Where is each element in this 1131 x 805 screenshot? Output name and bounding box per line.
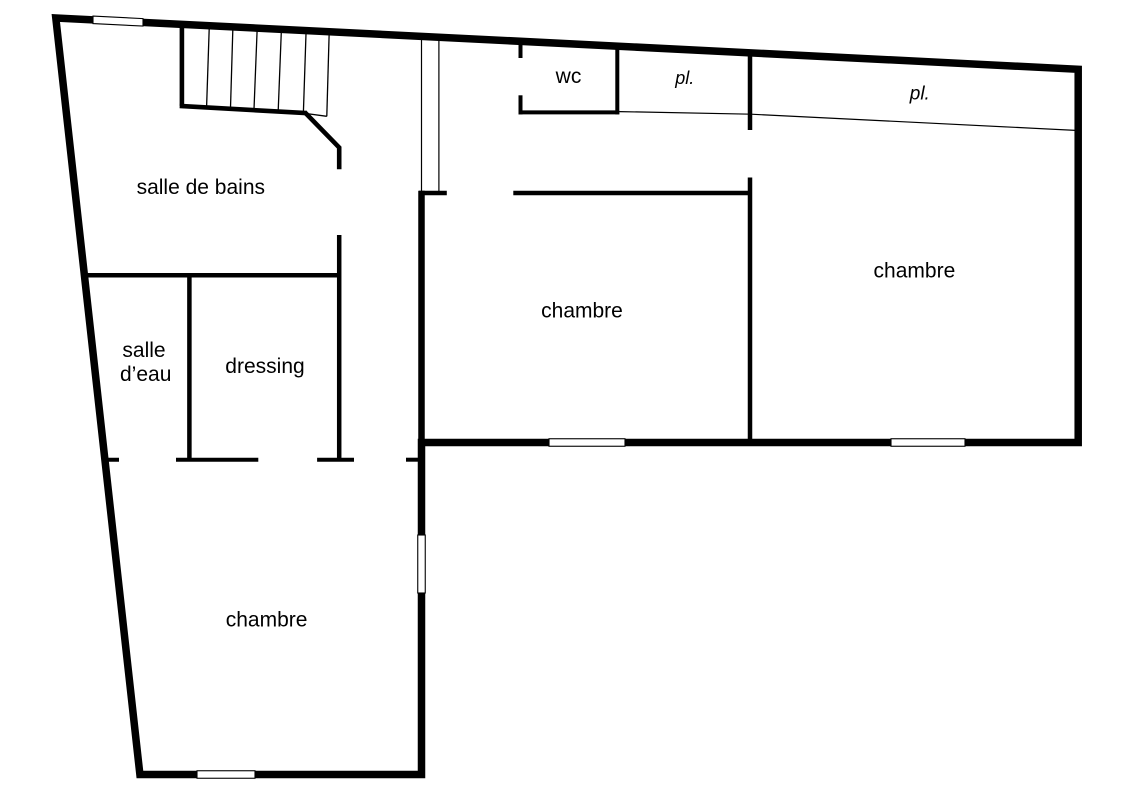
- svg-text:d’eau: d’eau: [120, 363, 171, 386]
- svg-text:chambre: chambre: [541, 300, 623, 323]
- svg-text:chambre: chambre: [226, 608, 308, 631]
- svg-text:salle de bains: salle de bains: [137, 176, 265, 199]
- svg-text:dressing: dressing: [225, 355, 304, 378]
- svg-text:wc: wc: [555, 65, 582, 88]
- svg-text:chambre: chambre: [874, 260, 956, 283]
- svg-text:salle: salle: [122, 339, 165, 362]
- svg-text:pl.: pl.: [674, 68, 694, 88]
- svg-text:pl.: pl.: [909, 84, 930, 105]
